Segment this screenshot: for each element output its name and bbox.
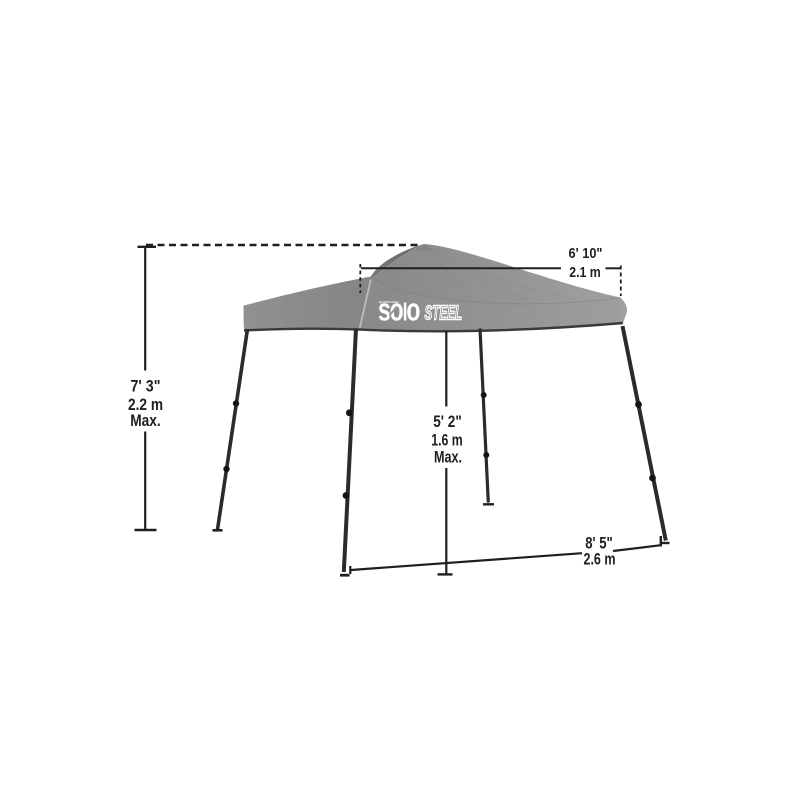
svg-text:7' 3": 7' 3" [131,378,161,396]
svg-text:6' 10": 6' 10" [569,245,603,262]
svg-text:5' 2": 5' 2" [433,413,462,431]
svg-text:2.6 m: 2.6 m [584,550,616,568]
svg-text:Max.: Max. [434,449,462,467]
svg-text:1.6 m: 1.6 m [431,432,463,450]
svg-text:solo: solo [378,292,420,328]
svg-text:2.1 m: 2.1 m [569,264,601,281]
svg-text:STEEL: STEEL [425,301,463,324]
svg-text:Max.: Max. [130,412,161,430]
